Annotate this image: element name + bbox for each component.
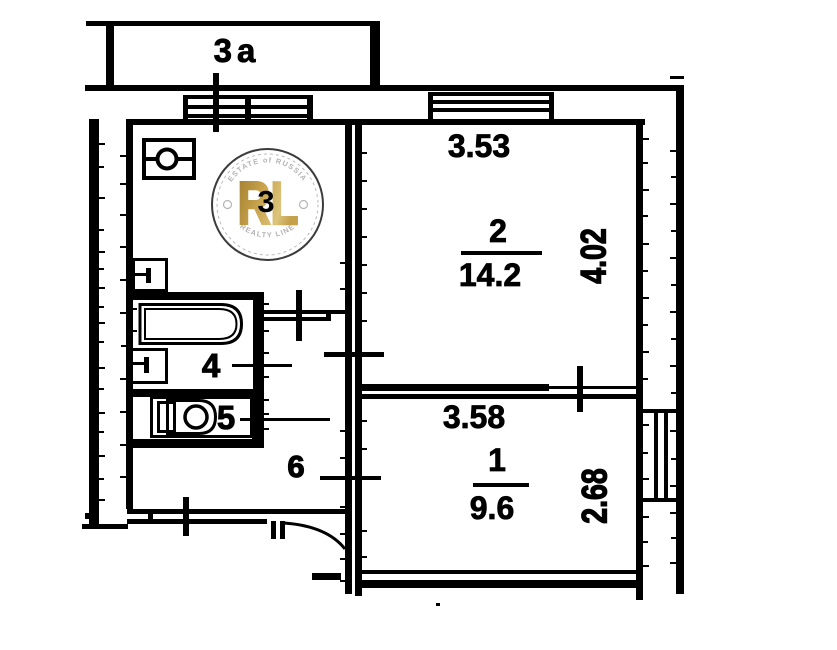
svg-text:4.02: 4.02 [573,228,613,283]
svg-text:1: 1 [488,442,506,478]
svg-text:3.58: 3.58 [443,399,505,435]
svg-text:3: 3 [257,184,274,219]
svg-text:4: 4 [202,347,221,384]
svg-text:3a: 3a [214,32,261,69]
svg-text:2: 2 [489,213,507,249]
svg-text:14.2: 14.2 [459,257,521,293]
svg-text:5: 5 [217,399,235,436]
svg-text:6: 6 [287,449,304,484]
svg-text:9.6: 9.6 [470,490,514,526]
svg-text:3.53: 3.53 [448,128,510,164]
svg-text:2.68: 2.68 [574,468,614,523]
